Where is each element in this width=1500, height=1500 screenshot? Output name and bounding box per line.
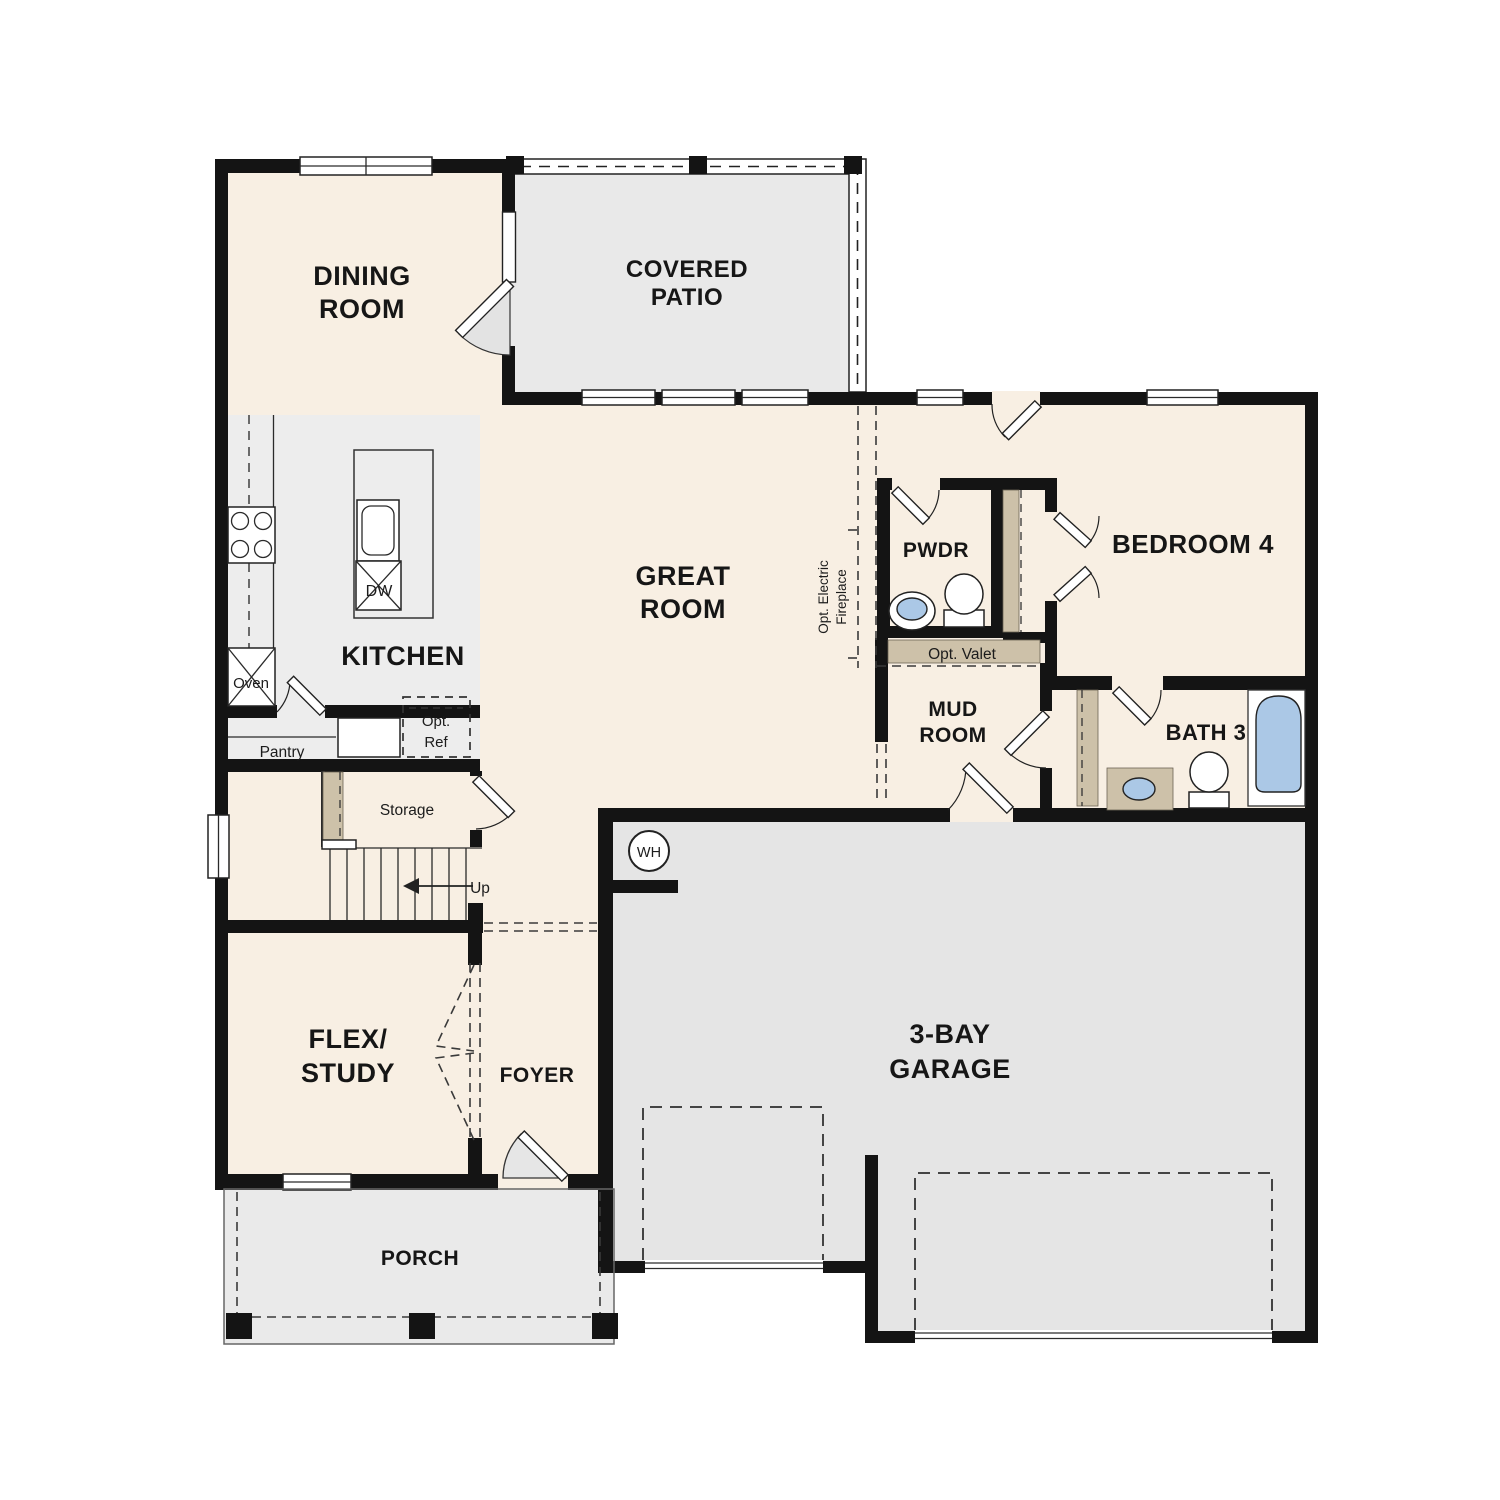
room-label-patio-line2: PATIO (651, 284, 723, 311)
patio-post (844, 156, 862, 174)
label-opt-valet: Opt. Valet (928, 646, 996, 663)
window-dining (300, 157, 432, 175)
label-water-heater: WH (637, 845, 661, 861)
cooktop-icon (228, 507, 275, 563)
room-label-great-room-line1: GREAT (636, 561, 731, 591)
label-oven: Oven (233, 675, 269, 692)
garage-door-bay1 (645, 1260, 823, 1274)
room-label-garage-line2: GARAGE (889, 1054, 1011, 1084)
label-opt-ref-line1: Opt. (422, 713, 450, 730)
garage-door-bay2 (915, 1330, 1272, 1344)
room-label-powder: PWDR (903, 539, 969, 562)
bath3-tub-icon (1248, 690, 1305, 806)
window-flex (283, 1174, 351, 1190)
bedroom4-closet (1003, 490, 1021, 632)
label-storage: Storage (380, 802, 434, 819)
label-pantry: Pantry (260, 744, 305, 761)
floor-plan-canvas: DINING ROOM COVERED PATIO KITCHEN GREAT … (0, 0, 1500, 1500)
storage-closet (323, 772, 343, 845)
bath3-sink-icon (1123, 778, 1155, 800)
window-bedroom4 (1147, 390, 1218, 405)
bath3-toilet-icon (1189, 752, 1229, 808)
room-label-porch: PORCH (381, 1247, 459, 1270)
label-opt-ref-line2: Ref (424, 734, 448, 751)
label-dishwasher: DW (366, 583, 394, 600)
room-label-dining-line1: DINING (313, 261, 411, 291)
porch-post (592, 1313, 618, 1339)
room-label-bath3: BATH 3 (1166, 720, 1247, 745)
room-label-flex-line2: STUDY (301, 1058, 395, 1088)
label-opt-fireplace-line2: Fireplace (834, 569, 849, 625)
window-patio-3 (742, 390, 808, 405)
counter (338, 718, 400, 757)
room-label-mud-line1: MUD (928, 698, 977, 721)
label-opt-fireplace-line1: Opt. Electric (816, 560, 831, 634)
sink-icon (357, 500, 399, 561)
mud-closet (1077, 690, 1098, 806)
room-label-kitchen: KITCHEN (341, 641, 465, 671)
room-label-flex-line1: FLEX/ (308, 1024, 387, 1054)
porch-post (226, 1313, 252, 1339)
window-patio-2 (662, 390, 735, 405)
window-patio-1 (582, 390, 655, 405)
room-label-bedroom4: BEDROOM 4 (1112, 529, 1274, 559)
room-label-dining-line2: ROOM (319, 294, 405, 324)
room-label-patio-line1: COVERED (626, 256, 748, 283)
room-label-foyer: FOYER (500, 1064, 575, 1087)
label-stairs-up: Up (470, 880, 490, 897)
room-label-great-room-line2: ROOM (640, 594, 726, 624)
bath3-vanity (1107, 768, 1173, 810)
room-label-garage-line1: 3-BAY (909, 1019, 990, 1049)
window-stair-hall (208, 815, 229, 878)
floor-fills (224, 172, 1305, 1344)
powder-sink-icon (889, 592, 935, 630)
room-label-mud-line2: ROOM (919, 724, 986, 747)
window-hall (917, 390, 963, 405)
porch-post (409, 1313, 435, 1339)
patio-post (689, 156, 707, 174)
powder-toilet-icon (944, 574, 984, 627)
